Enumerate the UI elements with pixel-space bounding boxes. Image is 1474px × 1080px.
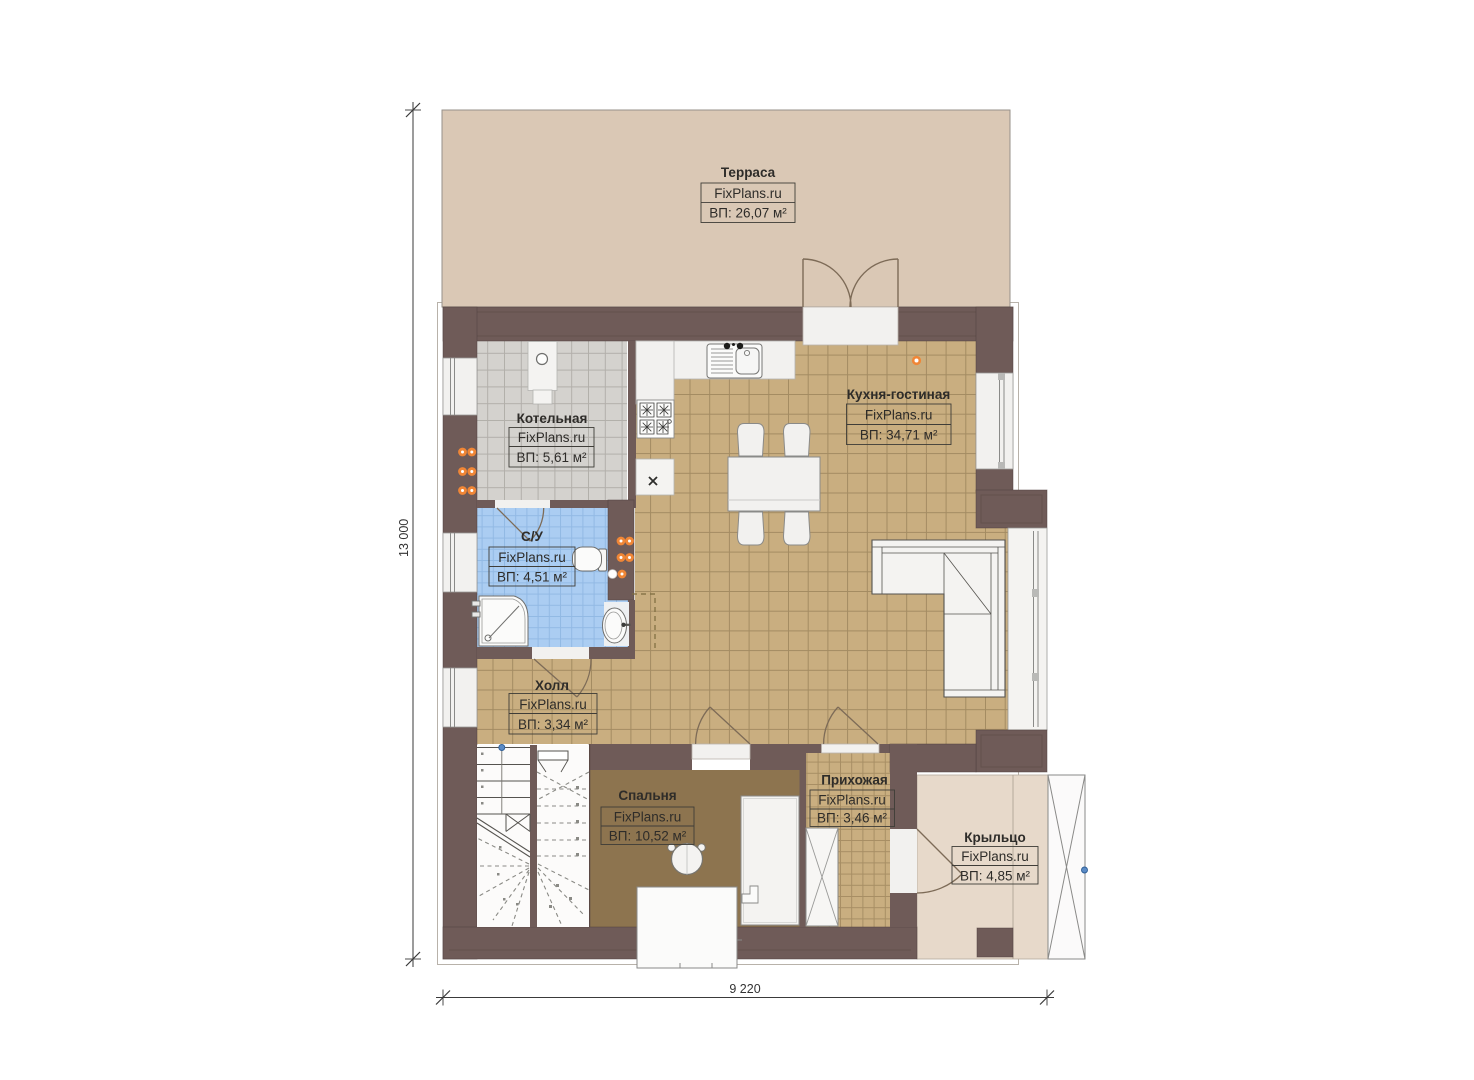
svg-text:Крыльцо: Крыльцо [964,830,1025,845]
svg-text:Холл: Холл [535,678,569,693]
svg-text:ВП: 3,46 м²: ВП: 3,46 м² [817,811,888,826]
svg-text:ВП: 4,51 м²: ВП: 4,51 м² [497,570,568,585]
svg-text:Спальня: Спальня [618,788,676,803]
svg-text:Кухня-гостиная: Кухня-гостиная [847,387,950,402]
svg-text:ВП: 5,61 м²: ВП: 5,61 м² [516,450,587,465]
svg-text:FixPlans.ru: FixPlans.ru [614,810,682,825]
svg-text:ВП: 3,34 м²: ВП: 3,34 м² [518,717,589,732]
svg-text:ВП: 10,52 м²: ВП: 10,52 м² [609,829,687,844]
svg-text:9 220: 9 220 [729,982,760,996]
svg-text:Прихожая: Прихожая [821,773,888,788]
svg-text:ВП: 34,71 м²: ВП: 34,71 м² [860,428,938,443]
svg-text:FixPlans.ru: FixPlans.ru [519,697,587,712]
svg-text:ВП: 4,85 м²: ВП: 4,85 м² [960,869,1031,884]
svg-text:13 000: 13 000 [397,519,411,557]
svg-text:FixPlans.ru: FixPlans.ru [518,430,586,445]
svg-text:FixPlans.ru: FixPlans.ru [961,849,1029,864]
svg-text:Котельная: Котельная [517,411,588,426]
svg-text:FixPlans.ru: FixPlans.ru [818,793,886,808]
svg-text:ВП: 26,07 м²: ВП: 26,07 м² [709,206,787,221]
svg-text:С/У: С/У [521,529,544,544]
svg-text:FixPlans.ru: FixPlans.ru [498,550,566,565]
svg-text:FixPlans.ru: FixPlans.ru [865,408,933,423]
svg-text:Терраса: Терраса [721,165,776,180]
svg-text:FixPlans.ru: FixPlans.ru [714,186,782,201]
